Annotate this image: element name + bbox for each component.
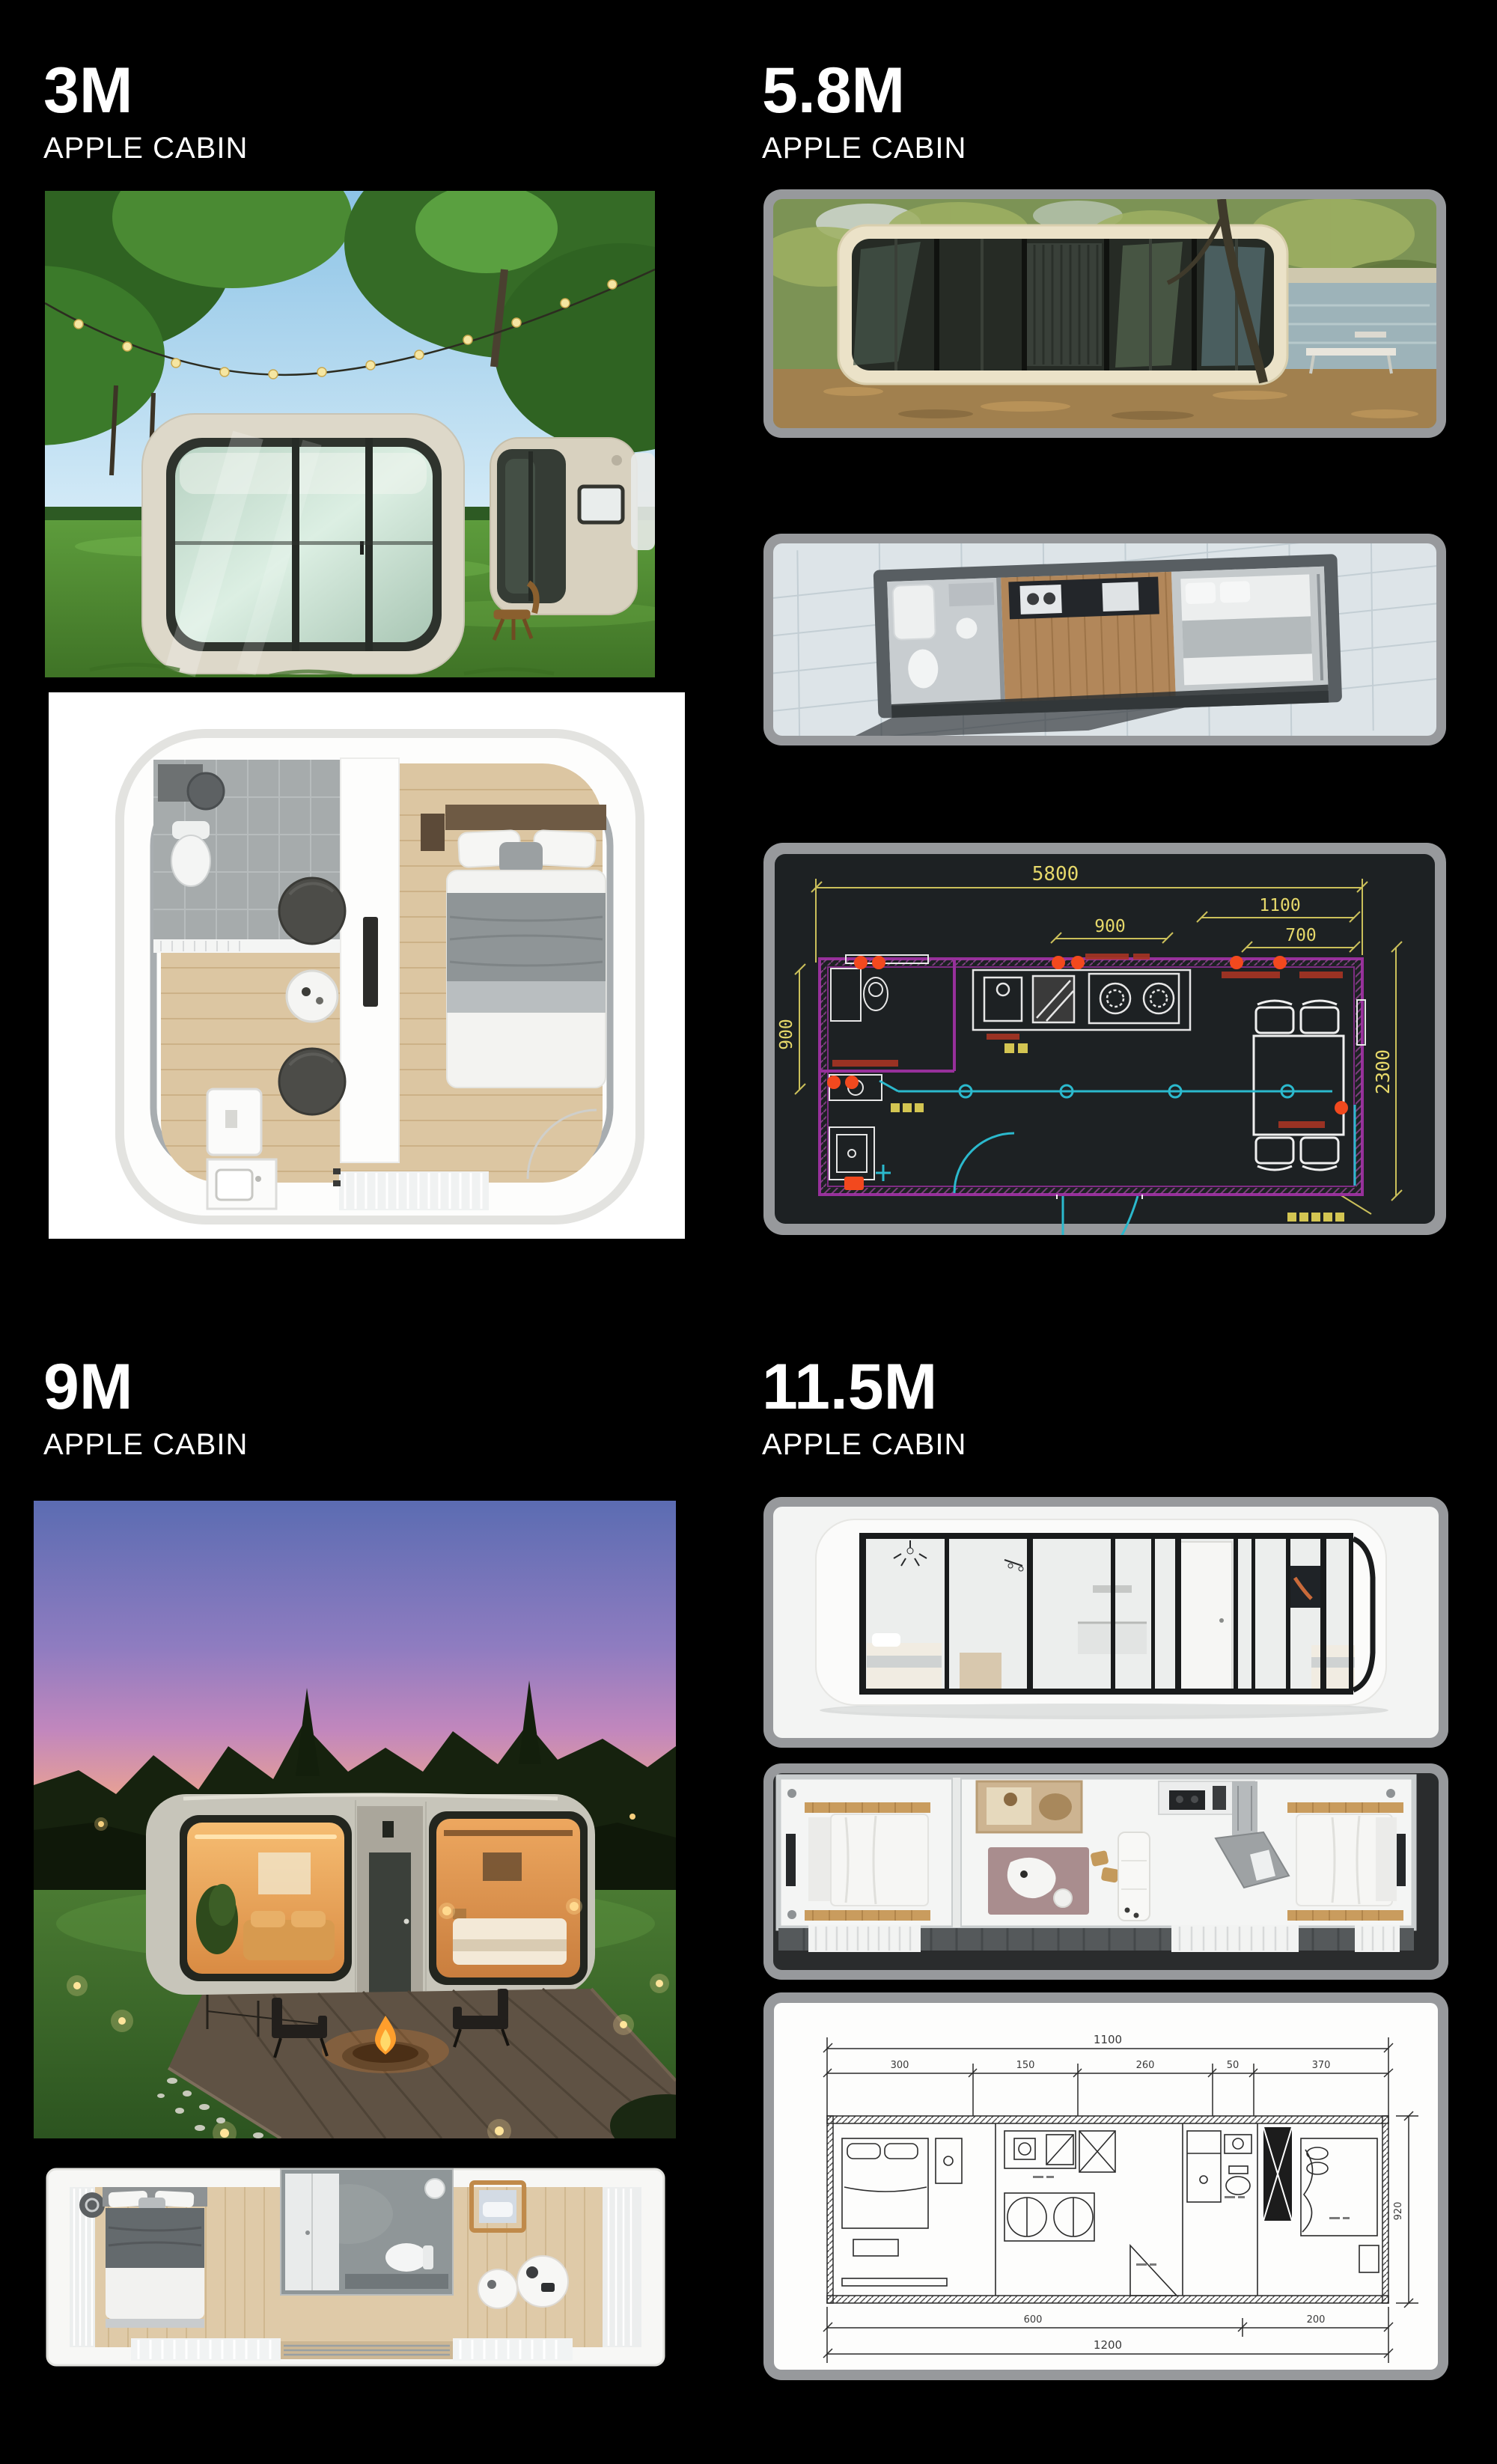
- section-5-8m-subtitle: APPLE CABIN: [762, 133, 966, 163]
- bed: [103, 2187, 207, 2328]
- render-11-5m-top-view: [763, 1763, 1448, 1980]
- section-11-5m-title: 11.5M: [762, 1355, 966, 1419]
- dim-label: 50: [1227, 2060, 1240, 2071]
- cabin: [146, 1794, 595, 1995]
- dim-label: 900: [1094, 917, 1126, 936]
- section-11-5m-subtitle: APPLE CABIN: [762, 1430, 966, 1460]
- section-9m-header: 9M APPLE CABIN: [43, 1355, 248, 1460]
- section-9m-title: 9M: [43, 1355, 248, 1419]
- section-5-8m-header: 5.8M APPLE CABIN: [762, 58, 966, 163]
- poster-canvas: 3M APPLE CABIN: [0, 0, 1497, 2464]
- cabin: [838, 225, 1287, 384]
- bathroom: [281, 2169, 453, 2295]
- section-3m-header: 3M APPLE CABIN: [43, 58, 248, 163]
- photo-5-8m-cabin-lakeside: [763, 189, 1446, 438]
- dim-label: 700: [1285, 926, 1317, 945]
- dim-label: 1200: [1094, 2338, 1122, 2352]
- section-5-8m-title: 5.8M: [762, 58, 966, 123]
- render-11-5m-side-view: [763, 1497, 1448, 1748]
- section-3m-subtitle: APPLE CABIN: [43, 133, 248, 163]
- dim-label: 920: [1393, 2202, 1404, 2221]
- dim-label: 1100: [1094, 2033, 1122, 2046]
- dim-label: 2300: [1372, 1049, 1394, 1094]
- dim-label: 900: [777, 1019, 796, 1050]
- dim-label: 300: [891, 2060, 909, 2071]
- dim-label: 370: [1312, 2060, 1331, 2071]
- dim-label: 260: [1136, 2060, 1155, 2071]
- left-cabin-pod: [142, 414, 464, 677]
- section-3m-title: 3M: [43, 58, 248, 123]
- deck: [778, 1925, 1414, 1952]
- dim-label: 1100: [1259, 896, 1300, 915]
- section-11-5m-header: 11.5M APPLE CABIN: [762, 1355, 966, 1460]
- render-5-8m-top-view: [763, 534, 1446, 745]
- dim-label: 600: [1024, 2314, 1043, 2326]
- right-bedroom: [1287, 1789, 1406, 1921]
- dim-label: 200: [1307, 2314, 1326, 2326]
- photo-9m-cabin-dusk: [34, 1501, 676, 2138]
- section-9m-subtitle: APPLE CABIN: [43, 1430, 248, 1460]
- dim-label: 5800: [1032, 863, 1079, 885]
- interior: [859, 1534, 1355, 1693]
- render-9m-floor-plan: [34, 2162, 677, 2375]
- cad-5-8m-floor-plan: 5800 1100 700 900 900 2300: [763, 843, 1446, 1235]
- photo-3m-cabins-exterior: [45, 191, 655, 677]
- render-3m-floor-plan: [49, 692, 685, 1239]
- blueprint-11-5m-floor-plan: 1100 300 150 260 50 370 600 200 1200 920: [763, 1992, 1448, 2380]
- right-cabin-pod: [490, 438, 637, 615]
- dim-label: 150: [1016, 2060, 1035, 2071]
